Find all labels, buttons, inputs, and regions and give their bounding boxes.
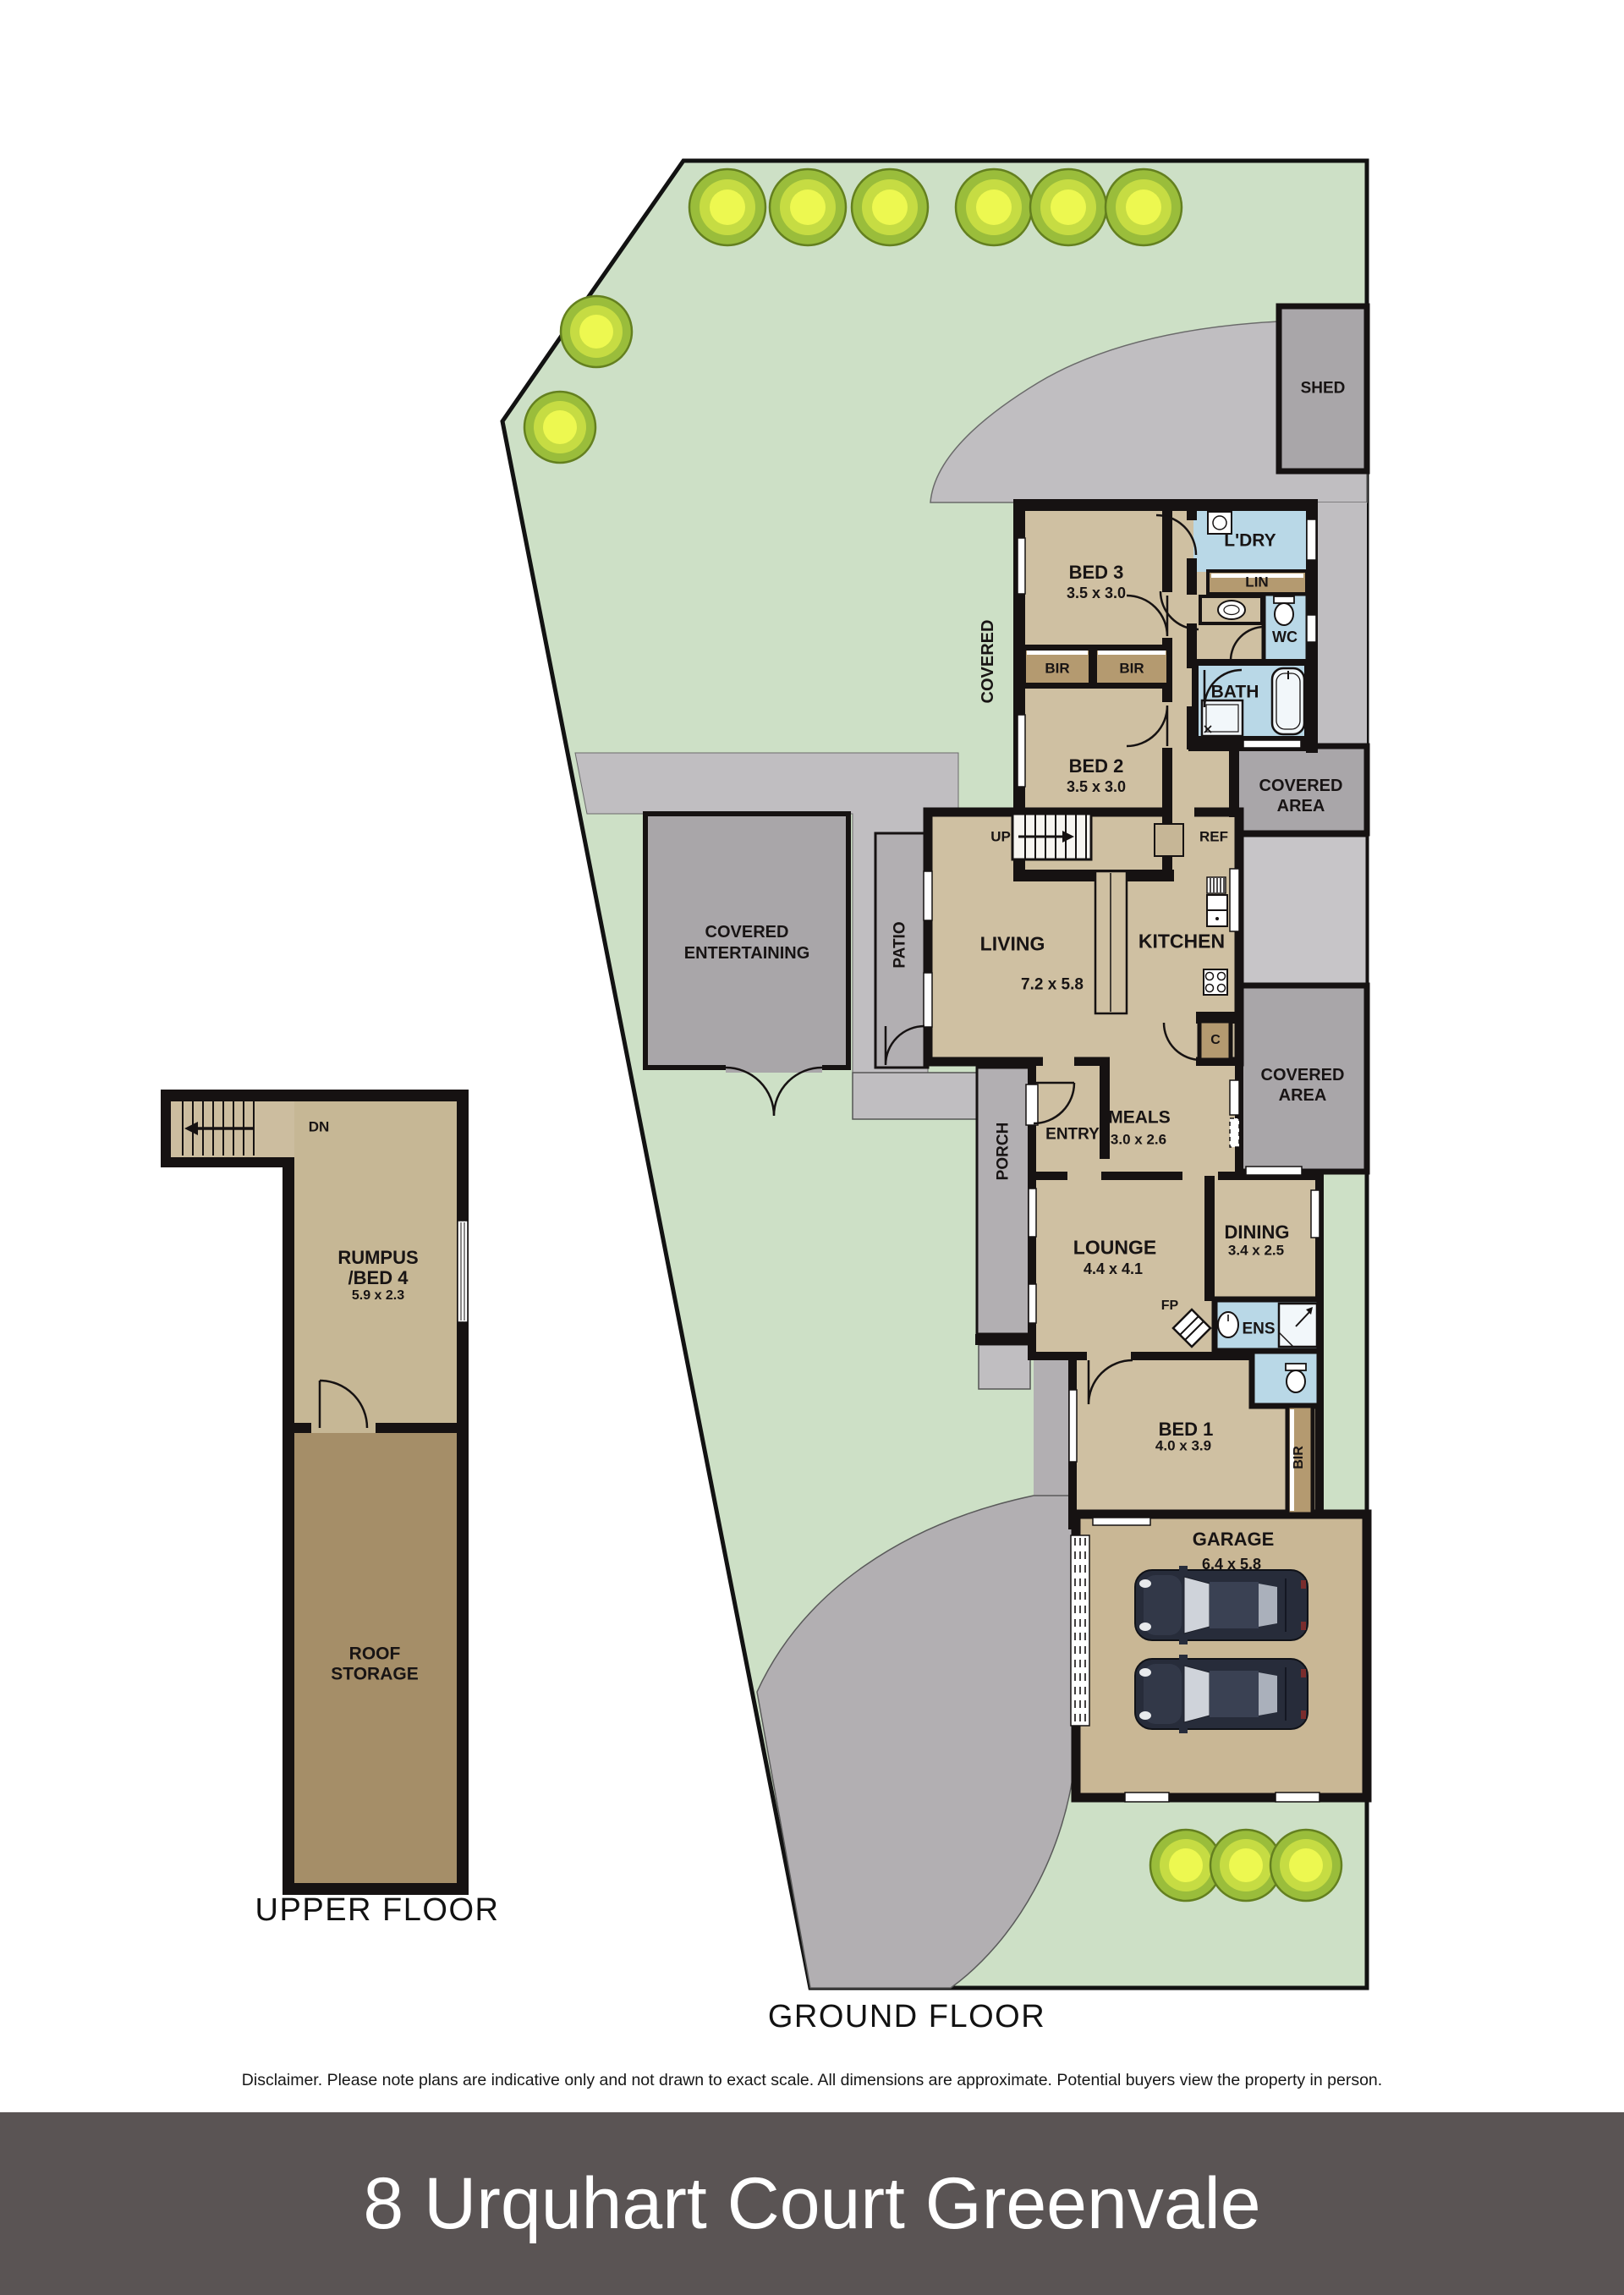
room-label-laundry: L'DRY bbox=[1224, 532, 1276, 550]
upper-floor-plan bbox=[161, 1090, 469, 1895]
garage-door-icon bbox=[1071, 1535, 1089, 1726]
room-dims-dining: 3.4 x 2.5 bbox=[1228, 1244, 1284, 1258]
room-label-garage: GARAGE bbox=[1193, 1530, 1275, 1549]
room-label-kitchen: KITCHEN bbox=[1138, 932, 1225, 952]
car-icon bbox=[1135, 1566, 1308, 1644]
robe-label: BIR bbox=[1292, 1446, 1306, 1469]
robe-label: BIR bbox=[1119, 662, 1144, 676]
room-dims-rumpus: 5.9 x 2.3 bbox=[352, 1289, 404, 1303]
room-label-meals: MEALS bbox=[1108, 1109, 1171, 1127]
room-label-rumpus: RUMPUS bbox=[337, 1249, 418, 1267]
room-label-bed1: BED 1 bbox=[1159, 1420, 1214, 1439]
strip-beside-bed1 bbox=[1034, 1345, 1073, 1496]
fireplace-label: FP bbox=[1161, 1299, 1178, 1313]
roof-storage-label: STORAGE bbox=[331, 1666, 418, 1683]
room-dims-living: 7.2 x 5.8 bbox=[1021, 977, 1084, 993]
ground-floor-caption: GROUND FLOOR bbox=[768, 2001, 1045, 2033]
address-title: 8 Urquhart Court Greenvale bbox=[0, 2112, 1624, 2295]
stairs-up-icon bbox=[1012, 814, 1091, 859]
room-label-living: LIVING bbox=[980, 935, 1045, 954]
fridge-label: REF bbox=[1199, 830, 1228, 844]
porch-label: PORCH bbox=[996, 1123, 1012, 1181]
patio-label: PATIO bbox=[892, 921, 908, 968]
stairs-up-label: UP bbox=[990, 830, 1011, 844]
ens-toilet-icon bbox=[1286, 1364, 1306, 1370]
covered-area-label: AREA bbox=[1279, 1087, 1327, 1104]
basin-icon bbox=[1218, 601, 1245, 619]
robe-label: BIR bbox=[1045, 662, 1069, 676]
room-dims-meals: 3.0 x 2.6 bbox=[1111, 1133, 1166, 1147]
covered-area-label: COVERED bbox=[1261, 1067, 1345, 1084]
room-dims-bed1: 4.0 x 3.9 bbox=[1155, 1439, 1211, 1453]
shower-icon bbox=[1202, 700, 1243, 736]
roof-storage-label: ROOF bbox=[349, 1645, 401, 1663]
room-label-dining: DINING bbox=[1225, 1223, 1290, 1242]
covered-walkway-label: COVERED bbox=[979, 620, 996, 704]
covered-area-label: COVERED bbox=[1259, 777, 1343, 794]
toilet-icon bbox=[1274, 596, 1294, 603]
room-label-bed2: BED 2 bbox=[1069, 757, 1124, 776]
address-title-bar: 8 Urquhart Court Greenvale bbox=[0, 2112, 1624, 2295]
room-label-bed3: BED 3 bbox=[1069, 563, 1124, 582]
porch-strip bbox=[977, 1068, 1032, 1334]
room-dims-bed3: 3.5 x 3.0 bbox=[1067, 585, 1126, 601]
room-label-lounge: LOUNGE bbox=[1073, 1238, 1156, 1258]
room-dims-lounge: 4.4 x 4.1 bbox=[1084, 1261, 1143, 1277]
covered-area-label: AREA bbox=[1277, 798, 1325, 815]
fridge-icon bbox=[1155, 824, 1183, 856]
entry-label: ENTRY bbox=[1045, 1127, 1100, 1143]
car-icon bbox=[1135, 1655, 1308, 1733]
shed-label: SHED bbox=[1301, 381, 1346, 397]
floorplan-canvas bbox=[0, 0, 1624, 2295]
room-label-bath: BATH bbox=[1211, 684, 1259, 701]
covered-entertaining-label: COVERED bbox=[705, 924, 789, 941]
upper-floor-caption: UPPER FLOOR bbox=[255, 1894, 500, 1926]
linen-label: LIN bbox=[1245, 575, 1268, 590]
stairs-down-label: DN bbox=[309, 1120, 330, 1134]
floorplan-page: BED 3 3.5 x 3.0 BIR BIR BED 2 3.5 x 3.0 … bbox=[0, 0, 1624, 2295]
room-label-wc: WC bbox=[1272, 629, 1298, 645]
covered-entertaining-label: ENTERTAINING bbox=[684, 945, 810, 962]
side-path-block bbox=[1239, 836, 1367, 986]
cupboard-label: C bbox=[1210, 1034, 1221, 1047]
room-label-rumpus: /BED 4 bbox=[348, 1269, 409, 1288]
ens-label: ENS bbox=[1242, 1321, 1275, 1337]
room-dims-garage: 6.4 x 5.8 bbox=[1202, 1557, 1261, 1572]
room-dims-bed2: 3.5 x 3.0 bbox=[1067, 779, 1126, 794]
disclaimer-text: Disclaimer. Please note plans are indica… bbox=[0, 2071, 1624, 2090]
